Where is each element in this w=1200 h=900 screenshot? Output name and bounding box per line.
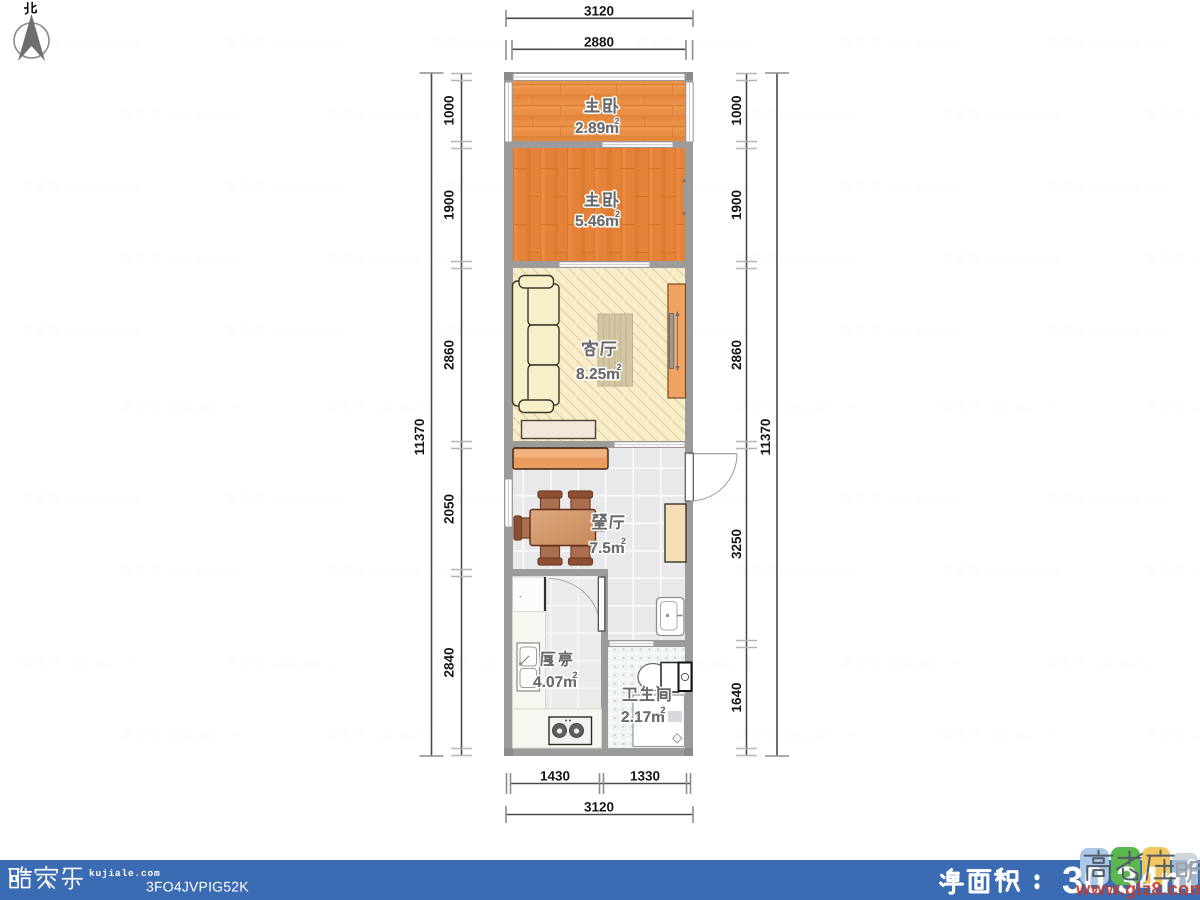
svg-text:www.glz8.com: www.glz8.com [1075,878,1200,899]
svg-text:kujiale.com: kujiale.com [89,868,161,879]
svg-text:3FO4JVPIG52K: 3FO4JVPIG52K [146,879,249,895]
